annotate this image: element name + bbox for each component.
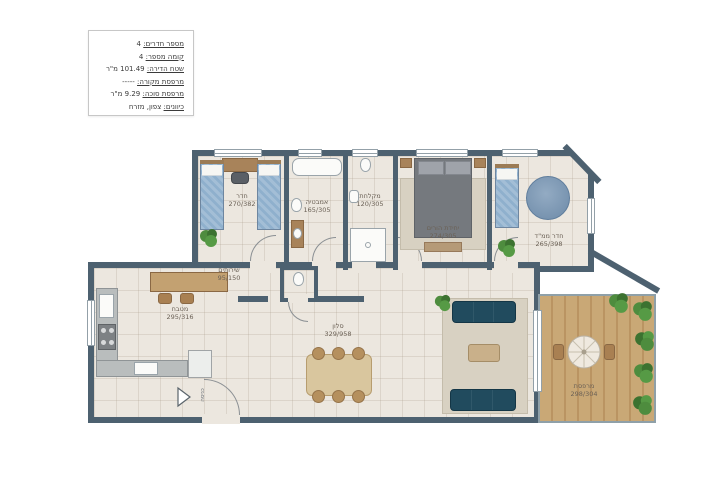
plant-icon <box>608 292 630 314</box>
wall-segment-diagonal-balcony <box>588 248 660 293</box>
wall-segment <box>318 296 364 302</box>
stool-icon <box>352 390 365 403</box>
plant-icon <box>632 394 654 416</box>
chair-icon <box>158 293 172 304</box>
wall-segment <box>343 152 348 270</box>
sink-icon <box>293 228 302 239</box>
coffee-table-icon <box>468 344 500 362</box>
info-line: שטח הדירה: 101.49 מ"ר <box>98 63 184 76</box>
wall-segment <box>284 152 289 270</box>
chair-icon <box>180 293 194 304</box>
page: { "info_box": { "lines": [ {"label": "מס… <box>0 0 708 500</box>
plant-icon <box>497 238 517 258</box>
umbrella-table-icon <box>566 334 602 370</box>
door-gap <box>352 261 376 273</box>
entrance-door-gap <box>202 414 240 424</box>
plant-icon <box>199 228 219 248</box>
stool-icon <box>332 390 345 403</box>
room-label-living-room: סלון 329/958 <box>314 322 362 339</box>
window <box>502 149 538 157</box>
door-gap <box>250 261 276 273</box>
chair-icon <box>604 344 615 360</box>
stove-icon <box>98 324 116 350</box>
kitchen-sink-icon <box>134 362 158 375</box>
sofa-icon <box>450 389 516 411</box>
bathtub-icon <box>292 158 342 176</box>
room-label-mamad: חדר ממ"ד 265/398 <box>524 232 574 249</box>
bed-icon <box>495 164 519 228</box>
wall-segment <box>238 296 268 302</box>
room-label-master-bedroom: יחידת הורים 274/305 <box>414 224 472 241</box>
nightstand-icon <box>400 158 412 168</box>
toilet-icon <box>293 272 304 286</box>
shower-tray-icon <box>350 228 386 262</box>
room-label-bathroom: אמבטיה 165/305 <box>294 198 340 215</box>
balcony-sliding-door <box>533 310 542 392</box>
info-line: קומה מספר: 4 <box>98 51 184 64</box>
kitchen-sink-icon <box>99 294 114 318</box>
window-kitchen <box>87 300 95 346</box>
entrance-arrow-icon <box>176 386 192 408</box>
sofa-icon <box>452 301 516 323</box>
toilet-icon <box>360 158 371 172</box>
desk-icon <box>222 158 258 172</box>
plant-icon <box>632 300 654 322</box>
window <box>298 149 322 157</box>
info-line: מרפסת מקורה: ----- <box>98 76 184 89</box>
room-label-wc: שירותים 95/150 <box>206 266 252 283</box>
door-gap <box>398 261 422 273</box>
nightstand-icon <box>474 158 486 168</box>
window <box>214 149 262 157</box>
wall-segment <box>487 152 492 270</box>
chair-icon <box>553 344 564 360</box>
plant-icon <box>434 294 452 312</box>
info-line: מרפסת סוכה: 9.29 מ"ר <box>98 88 184 101</box>
round-rug <box>526 176 570 220</box>
stool-icon <box>332 347 345 360</box>
window-mamad <box>587 198 595 234</box>
plant-icon <box>633 362 655 384</box>
room-label-kitchen: מטבח 295/316 <box>156 305 204 322</box>
window <box>416 149 468 157</box>
door-gap <box>494 261 518 273</box>
info-line: מספר חדרים: 4 <box>98 38 184 51</box>
room-label-balcony: מרפסת 298/304 <box>560 382 608 399</box>
fridge-icon <box>188 350 212 378</box>
entrance-label: כניסה <box>200 380 206 410</box>
bench-icon <box>424 242 462 252</box>
stool-icon <box>312 347 325 360</box>
room-label-shower: מקלחת 120/305 <box>348 192 392 209</box>
window <box>352 149 378 157</box>
plant-icon <box>634 330 656 352</box>
stool-icon <box>312 390 325 403</box>
desk-chair-icon <box>231 172 249 184</box>
stool-icon <box>352 347 365 360</box>
apartment-info-box: מספר חדרים: 4 קומה מספר: 4 שטח הדירה: 10… <box>88 30 194 116</box>
info-line: כיוונים: צפון, מזרח <box>98 101 184 114</box>
room-label-bedroom: חדר 270/382 <box>218 192 266 209</box>
